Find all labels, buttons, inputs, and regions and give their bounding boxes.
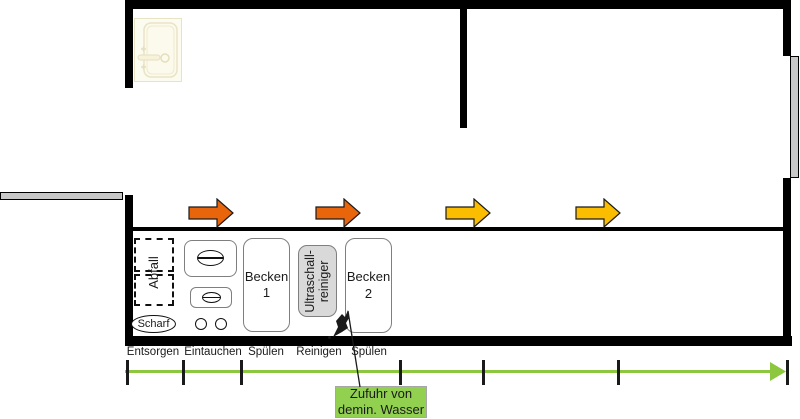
wall-divider [460, 9, 467, 128]
callout-line-2: demin. Wasser [338, 402, 424, 418]
beaker-circle-2 [215, 318, 227, 330]
dish-small-icon [202, 292, 221, 303]
flow-arrow-1-icon [188, 198, 234, 228]
process-step-reinigen: Reinigen [296, 346, 341, 358]
basin-2-number: 2 [365, 286, 372, 302]
axis-tick-1 [126, 360, 129, 385]
basin-2-label: Becken [347, 269, 390, 285]
ultrasonic-cleaner-box: Ultraschall- reiniger [298, 245, 337, 317]
sink-icon [134, 18, 182, 82]
axis-tick-6 [617, 360, 620, 385]
process-flow-line [125, 370, 773, 373]
flow-arrow-3-icon [445, 198, 491, 228]
floor-plan-diagram: Abfall Becken 1 Ultraschall- reiniger Be… [0, 0, 800, 419]
axis-tick-5 [482, 360, 485, 385]
wall-top [125, 0, 791, 9]
sharp-items-oval: Scharf [131, 315, 176, 333]
basin-1-label: Becken [245, 269, 288, 285]
ultrasonic-cleaner-label-2: reiniger [318, 250, 332, 313]
ultrasonic-cleaner-label-1: Ultraschall- [303, 250, 317, 313]
door-left-leaf [0, 192, 123, 200]
wall-right-upper [783, 0, 791, 56]
process-flow-arrowhead-icon [770, 362, 788, 382]
process-step-spuelen-1: Spülen [248, 346, 284, 358]
door-right-leaf [790, 56, 799, 178]
axis-tick-3 [240, 360, 243, 385]
callout-pointer-overlay [0, 0, 800, 419]
axis-tick-2 [182, 360, 185, 385]
waste-label: Abfall [147, 256, 162, 289]
dish-large-icon [197, 250, 224, 266]
wall-right-lower [783, 178, 791, 345]
callout-line-1: Zufuhr von [350, 386, 412, 402]
waste-label-wrap: Abfall [134, 238, 174, 306]
basin-1-number: 1 [263, 285, 270, 301]
flow-arrow-4-icon [575, 198, 621, 228]
process-step-entsorgen: Entsorgen [127, 346, 179, 358]
wall-bottom [125, 336, 792, 346]
axis-tick-4 [399, 360, 402, 385]
basin-1-box: Becken 1 [243, 238, 290, 332]
basin-2-box: Becken 2 [345, 238, 392, 333]
wall-left-upper [125, 0, 133, 88]
beaker-circle-1 [195, 318, 207, 330]
sharp-items-label: Scharf [138, 318, 170, 330]
water-supply-callout: Zufuhr von demin. Wasser [335, 386, 427, 418]
flow-arrow-2-icon [315, 198, 361, 228]
process-step-eintauchen: Eintauchen [184, 346, 242, 358]
process-step-spuelen-2: Spülen [351, 346, 387, 358]
